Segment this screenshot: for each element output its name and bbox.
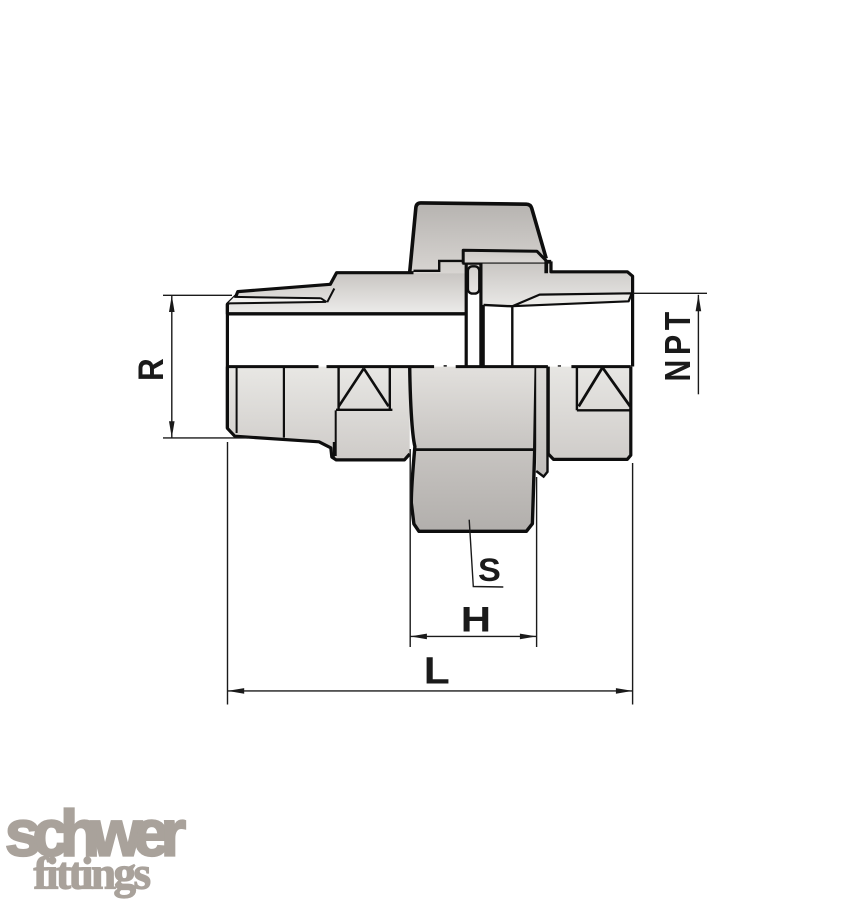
svg-text:NPT: NPT bbox=[659, 307, 699, 381]
svg-text:S: S bbox=[478, 553, 501, 589]
svg-text:L: L bbox=[424, 649, 450, 692]
svg-text:fittings: fittings bbox=[34, 849, 151, 899]
svg-text:H: H bbox=[461, 601, 491, 640]
svg-text:R: R bbox=[133, 358, 172, 381]
